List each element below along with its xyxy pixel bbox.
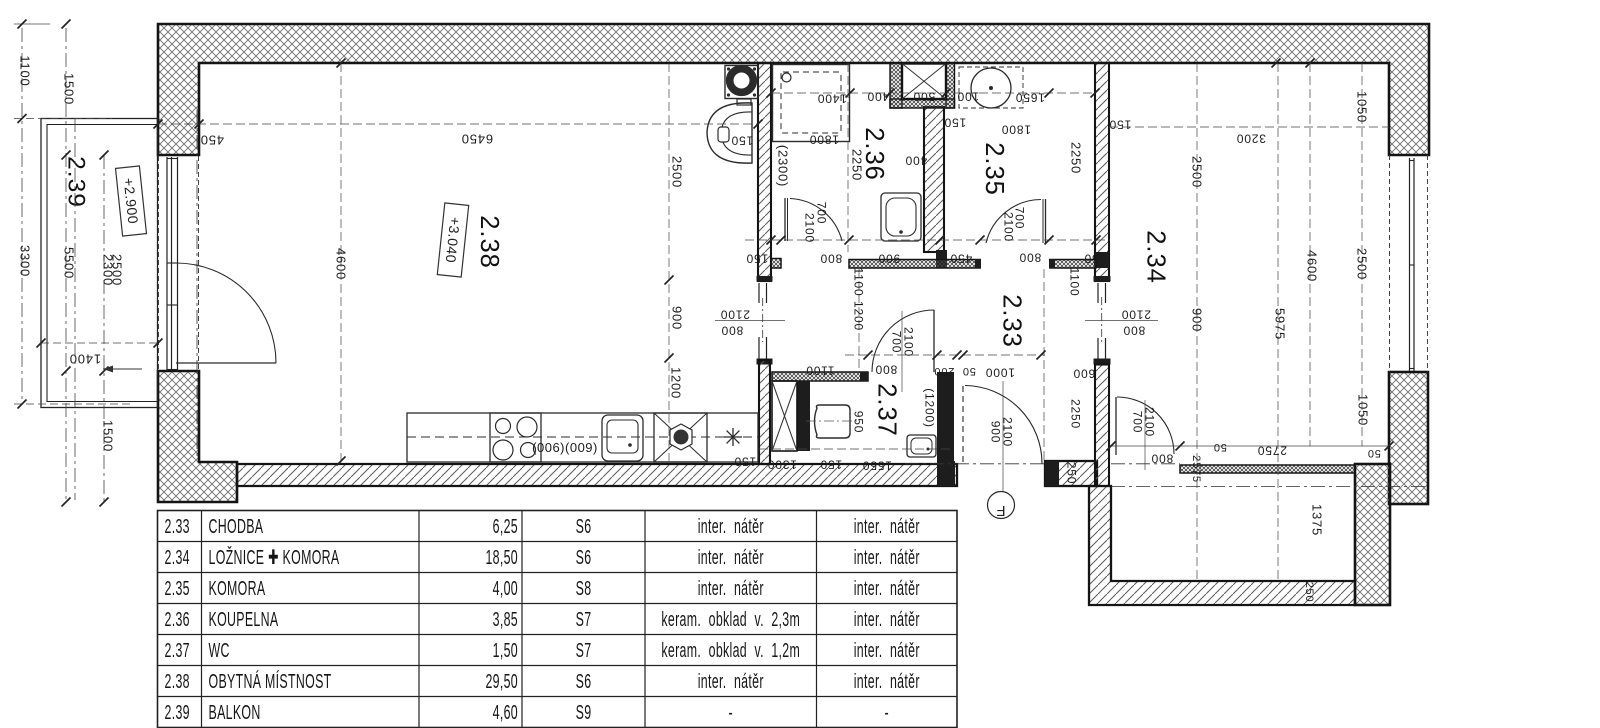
- svg-text:150: 150: [820, 457, 842, 471]
- svg-text:2100: 2100: [1121, 307, 1151, 321]
- svg-text:2100: 2100: [720, 307, 750, 321]
- svg-text:2500: 2500: [109, 254, 124, 286]
- svg-text:2.34: 2.34: [1141, 230, 1169, 284]
- svg-text:2.38: 2.38: [475, 215, 503, 269]
- svg-text:2.35: 2.35: [980, 142, 1008, 196]
- svg-text:2100: 2100: [803, 213, 817, 243]
- svg-text:S6: S6: [576, 670, 592, 693]
- svg-text:inter. nátěr: inter. nátěr: [698, 577, 764, 600]
- svg-text:1200: 1200: [668, 367, 683, 399]
- svg-text:1100: 1100: [1068, 267, 1082, 296]
- svg-text:2.36: 2.36: [165, 608, 190, 631]
- svg-text:1300: 1300: [767, 457, 797, 471]
- svg-text:900: 900: [989, 421, 1003, 443]
- svg-text:2100: 2100: [1002, 212, 1016, 242]
- svg-text:4600: 4600: [1304, 250, 1319, 282]
- svg-text:200: 200: [934, 365, 955, 377]
- svg-text:inter. nátěr: inter. nátěr: [854, 546, 920, 569]
- svg-text:150: 150: [746, 251, 768, 265]
- svg-text:50: 50: [1367, 447, 1381, 459]
- svg-text:250: 250: [1303, 582, 1315, 603]
- svg-text:LOŽNICE ✚ KOMORA: LOŽNICE ✚ KOMORA: [209, 546, 340, 569]
- svg-text:100: 100: [957, 89, 979, 103]
- svg-text:inter. nátěr: inter. nátěr: [854, 639, 920, 662]
- svg-text:400: 400: [867, 89, 889, 103]
- svg-text:2.38: 2.38: [165, 670, 190, 693]
- svg-text:inter. nátěr: inter. nátěr: [698, 546, 764, 569]
- svg-text:250: 250: [1065, 462, 1079, 484]
- svg-text:2.35: 2.35: [165, 577, 190, 600]
- svg-text:OBYTNÁ MÍSTNOST: OBYTNÁ MÍSTNOST: [209, 670, 332, 693]
- svg-text:S9: S9: [576, 701, 592, 724]
- svg-text:1,50: 1,50: [493, 639, 518, 662]
- svg-text:18,50: 18,50: [485, 546, 518, 569]
- svg-text:keram. obklad v. 1,2m: keram. obklad v. 1,2m: [661, 639, 800, 662]
- svg-text:keram. obklad v. 2,3m: keram. obklad v. 2,3m: [661, 608, 800, 631]
- svg-text:CHODBA: CHODBA: [209, 515, 264, 538]
- svg-text:4600: 4600: [333, 248, 348, 280]
- svg-text:900: 900: [878, 251, 900, 265]
- svg-text:inter. nátěr: inter. nátěr: [854, 608, 920, 631]
- svg-text:800: 800: [875, 362, 897, 376]
- svg-text:1100: 1100: [805, 363, 834, 377]
- svg-text:2.37: 2.37: [165, 639, 190, 662]
- svg-text:400: 400: [905, 153, 927, 167]
- svg-text:1375: 1375: [1309, 504, 1324, 536]
- svg-text:1100: 1100: [852, 267, 866, 296]
- svg-text:1100: 1100: [17, 55, 32, 86]
- svg-text:900: 900: [1189, 308, 1204, 332]
- svg-text:2.34: 2.34: [165, 546, 190, 569]
- svg-text:2500: 2500: [1354, 248, 1369, 280]
- svg-text:700: 700: [890, 331, 904, 353]
- svg-text:450: 450: [950, 251, 972, 265]
- svg-text:700: 700: [1131, 411, 1145, 433]
- svg-text:S8: S8: [576, 577, 592, 600]
- svg-text:5500: 5500: [61, 247, 76, 279]
- svg-text:2.39: 2.39: [165, 701, 190, 724]
- svg-text:S7: S7: [576, 608, 592, 631]
- svg-text:-: -: [729, 701, 733, 724]
- svg-text:50: 50: [1213, 441, 1227, 453]
- svg-text:2250: 2250: [1069, 399, 1083, 429]
- svg-text:4,60: 4,60: [493, 701, 518, 724]
- svg-text:150: 150: [731, 133, 753, 147]
- svg-text:1500: 1500: [61, 73, 76, 105]
- svg-text:2.39: 2.39: [63, 156, 90, 208]
- svg-text:3200: 3200: [1236, 131, 1266, 145]
- svg-text:2.37: 2.37: [872, 383, 900, 437]
- svg-text:2250: 2250: [1068, 142, 1083, 174]
- svg-text:KOUPELNA: KOUPELNA: [209, 608, 279, 631]
- svg-text:1650: 1650: [1015, 90, 1045, 104]
- svg-text:29,50: 29,50: [485, 670, 518, 693]
- svg-text:1500: 1500: [100, 420, 115, 452]
- svg-text:(1200): (1200): [923, 388, 937, 428]
- svg-text:inter. nátěr: inter. nátěr: [698, 670, 764, 693]
- svg-text:inter. nátěr: inter. nátěr: [854, 577, 920, 600]
- svg-text:800: 800: [1151, 451, 1173, 465]
- svg-text:450: 450: [200, 133, 224, 148]
- svg-text:2750: 2750: [1257, 443, 1287, 457]
- svg-text:150: 150: [944, 115, 966, 129]
- svg-text:S7: S7: [576, 639, 592, 662]
- svg-text:900: 900: [669, 306, 684, 330]
- svg-text:1050: 1050: [1354, 91, 1369, 123]
- svg-text:950: 950: [852, 411, 866, 433]
- svg-text:2.33: 2.33: [997, 294, 1025, 348]
- svg-text:1200: 1200: [852, 301, 866, 331]
- svg-text:150: 150: [1109, 117, 1131, 131]
- svg-text:800: 800: [721, 323, 743, 337]
- svg-text:800: 800: [1019, 250, 1041, 264]
- svg-text:1550: 1550: [862, 458, 892, 472]
- svg-text:WC: WC: [209, 639, 230, 662]
- svg-text:800: 800: [820, 251, 842, 265]
- svg-text:50: 50: [962, 365, 976, 377]
- svg-text:1400: 1400: [69, 352, 101, 367]
- svg-text:2500: 2500: [1189, 156, 1204, 188]
- svg-text:2250: 2250: [849, 149, 864, 181]
- svg-text:-: -: [885, 701, 889, 724]
- svg-text:5975: 5975: [1272, 308, 1287, 340]
- svg-text:3,85: 3,85: [493, 608, 518, 631]
- svg-text:600: 600: [1073, 366, 1095, 380]
- svg-text:inter. nátěr: inter. nátěr: [854, 515, 920, 538]
- svg-text:2100: 2100: [902, 327, 916, 357]
- svg-text:inter. nátěr: inter. nátěr: [854, 670, 920, 693]
- svg-text:(006)(009): (006)(009): [532, 440, 598, 455]
- svg-text:1800: 1800: [809, 132, 839, 146]
- svg-text:3300: 3300: [17, 245, 32, 277]
- svg-text:150: 150: [734, 454, 756, 468]
- svg-text:6,25: 6,25: [493, 515, 518, 538]
- svg-text:S6: S6: [576, 515, 592, 538]
- svg-text:4,00: 4,00: [493, 577, 518, 600]
- svg-text:inter. nátěr: inter. nátěr: [698, 515, 764, 538]
- svg-text:S6: S6: [576, 546, 592, 569]
- svg-text:1800: 1800: [1001, 122, 1031, 136]
- svg-text:550: 550: [1084, 251, 1106, 265]
- svg-text:KOMORA: KOMORA: [209, 577, 266, 600]
- svg-text:2575: 2575: [1190, 455, 1202, 483]
- svg-text:800: 800: [1123, 323, 1145, 337]
- svg-text:1050: 1050: [1355, 394, 1370, 426]
- svg-text:F: F: [996, 502, 1005, 519]
- svg-text:(2300): (2300): [775, 145, 790, 187]
- svg-text:1400: 1400: [817, 91, 847, 105]
- svg-text:500: 500: [913, 89, 935, 103]
- svg-text:2.33: 2.33: [165, 515, 190, 538]
- svg-text:6450: 6450: [461, 132, 493, 147]
- svg-text:BALKON: BALKON: [209, 701, 261, 724]
- svg-text:2500: 2500: [669, 156, 684, 188]
- svg-text:1000: 1000: [985, 365, 1015, 379]
